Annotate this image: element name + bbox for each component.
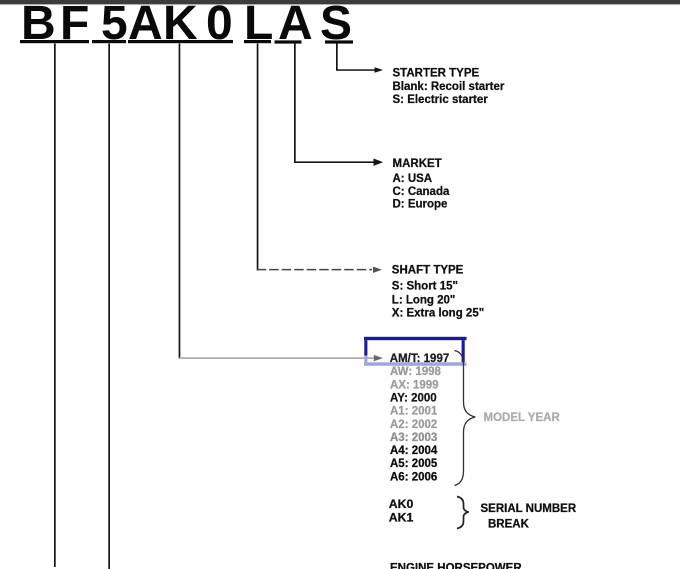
svg-text:BREAK: BREAK [488,519,530,531]
svg-text:A6: 2006: A6: 2006 [390,471,437,483]
svg-text:SHAFT TYPE: SHAFT TYPE [392,264,464,276]
svg-text:X: Extra long 25": X: Extra long 25" [392,308,484,320]
svg-text:S: Short 15": S: Short 15" [392,280,458,292]
svg-text:C: Canada: C: Canada [393,186,450,198]
svg-text:AK0: AK0 [389,497,414,511]
svg-text:A3: 2003: A3: 2003 [390,432,437,444]
svg-text:Blank: Recoil starter: Blank: Recoil starter [393,81,505,93]
svg-text:MARKET: MARKET [393,158,442,170]
svg-text:A2: 2002: A2: 2002 [390,419,437,431]
svg-text:A: USA: A: USA [393,173,433,185]
svg-text:AK1: AK1 [389,510,414,524]
svg-text:AY: 2000: AY: 2000 [390,393,437,405]
svg-text:AM/T: 1997: AM/T: 1997 [390,353,449,365]
svg-text:S: Electric starter: S: Electric starter [393,94,489,106]
svg-text:AW: 1998: AW: 1998 [390,366,442,378]
svg-text:AX: 1999: AX: 1999 [390,379,439,391]
svg-text:D: Europe: D: Europe [393,199,448,211]
svg-text:A4: 2004: A4: 2004 [390,445,438,457]
svg-text:L: Long 20": L: Long 20" [392,295,456,307]
svg-text:A5: 2005: A5: 2005 [390,458,438,470]
svg-text:SERIAL NUMBER: SERIAL NUMBER [481,503,577,515]
svg-text:A1: 2001: A1: 2001 [390,406,438,418]
svg-text:MODEL YEAR: MODEL YEAR [484,412,561,424]
svg-text:STARTER TYPE: STARTER TYPE [393,67,480,79]
svg-text:ENGINE HORSEPOWER: ENGINE HORSEPOWER [390,562,522,569]
